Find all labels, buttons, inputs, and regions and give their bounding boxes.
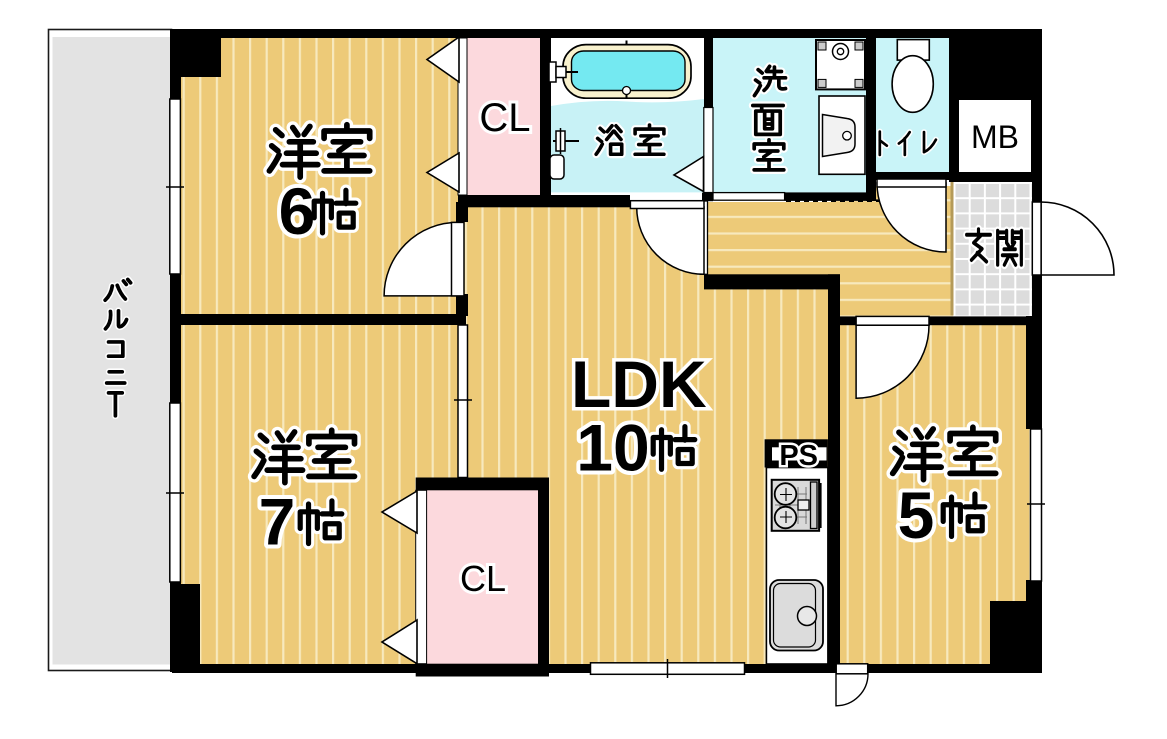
svg-text:5: 5: [898, 478, 935, 552]
svg-text:6: 6: [279, 174, 316, 248]
svg-text:10: 10: [576, 411, 649, 485]
svg-text:CL: CL: [479, 96, 530, 140]
svg-text:PS: PS: [779, 440, 818, 472]
svg-text:7: 7: [259, 485, 296, 559]
svg-text:MB: MB: [971, 119, 1019, 155]
svg-text:CL: CL: [460, 558, 506, 599]
